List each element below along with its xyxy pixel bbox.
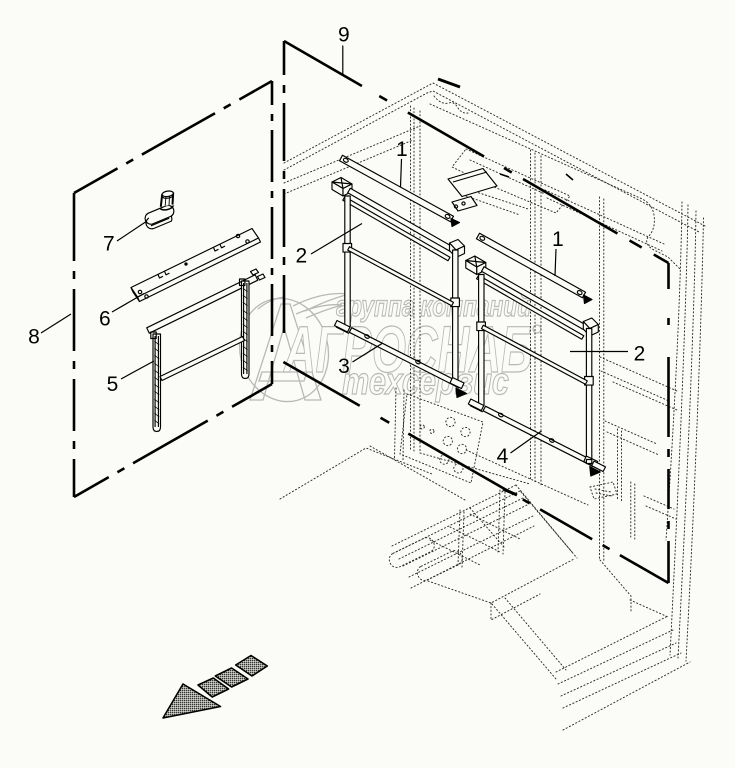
svg-text:8: 8 xyxy=(28,325,40,348)
svg-text:9: 9 xyxy=(338,24,350,47)
svg-text:2: 2 xyxy=(634,343,646,366)
svg-text:4: 4 xyxy=(497,445,509,468)
svg-text:1: 1 xyxy=(396,138,408,161)
svg-text:6: 6 xyxy=(99,307,111,330)
svg-text:7: 7 xyxy=(103,232,115,255)
svg-text:5: 5 xyxy=(107,373,119,396)
svg-text:3: 3 xyxy=(338,355,350,378)
svg-text:2: 2 xyxy=(296,245,308,268)
svg-text:1: 1 xyxy=(552,228,564,251)
